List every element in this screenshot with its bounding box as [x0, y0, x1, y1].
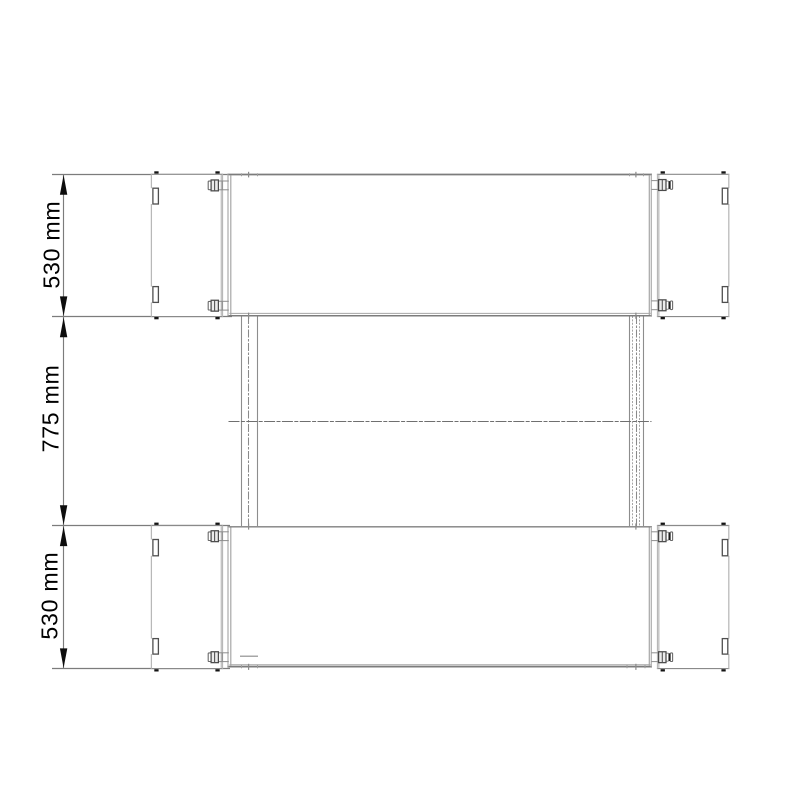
svg-text:530 mm: 530 mm [36, 552, 62, 640]
svg-text:775 mm: 775 mm [38, 364, 64, 452]
svg-text:530 mm: 530 mm [38, 201, 64, 289]
